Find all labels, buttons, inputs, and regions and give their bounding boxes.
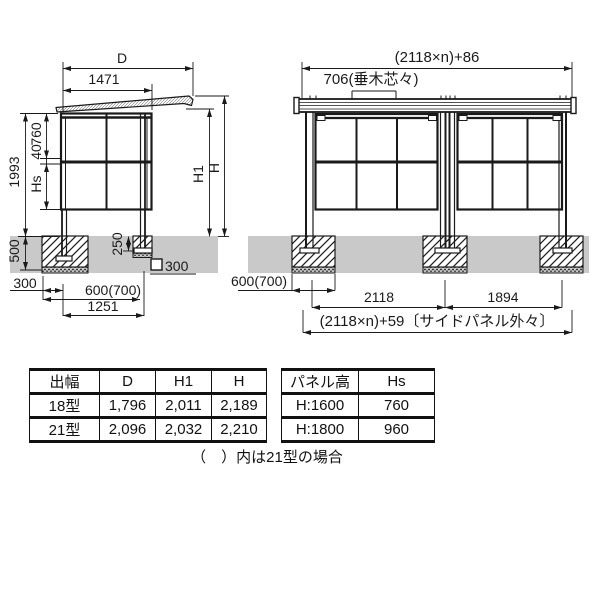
dim-label-600-700-left: 600(700): [85, 283, 141, 297]
table-cell: 760: [359, 394, 435, 418]
dim-label-250: 250: [110, 232, 124, 255]
front-footing: [133, 236, 152, 258]
catalog-dimension-drawing-page: { "left_view": { "dims": { "d": "D", "de…: [0, 0, 600, 600]
dim-label-1251: 1251: [87, 299, 118, 313]
dim-label-panel-outer: (2118×n)+59〔サイドパネル外々〕: [320, 314, 555, 329]
table-row: H:1800 960: [282, 418, 435, 442]
panel-height-table: パネル高 Hs H:1600 760 H:1800 960: [281, 368, 435, 443]
col-header: D: [100, 370, 156, 394]
table-cell: H:1600: [282, 394, 359, 418]
dim-bays: [312, 280, 562, 308]
table-header-row: パネル高 Hs: [282, 370, 435, 394]
panel-bay-1: [316, 114, 438, 210]
dim-label-1993: 1993: [7, 156, 21, 187]
col-header: 出幅: [30, 370, 100, 394]
col-header: H: [212, 370, 267, 394]
dim-label-total-width: (2118×n)+86: [395, 50, 480, 65]
post-middle: [435, 112, 460, 253]
front-elevation: [238, 62, 589, 333]
table-cell: 21型: [30, 418, 100, 442]
dim-label-d: D: [117, 51, 127, 65]
anchor-square-symbol: [151, 259, 162, 270]
dim-label-h1: H1: [191, 165, 205, 183]
size-spec-table: 出幅 D H1 H 18型 1,796 2,011 2,189 21型 2,09…: [29, 368, 267, 443]
col-header: パネル高: [282, 370, 359, 394]
roof-beam: [294, 96, 576, 114]
dim-label-1894: 1894: [487, 290, 518, 304]
dim-label-500: 500: [7, 239, 21, 262]
dim-label-h: H: [207, 163, 221, 173]
dim-label-1471: 1471: [88, 72, 119, 86]
dim-label-300: 300: [13, 276, 36, 290]
col-header: Hs: [359, 370, 435, 394]
dim-label-hs: Hs: [29, 175, 43, 192]
roof-slab: [56, 96, 193, 112]
footing-3: [540, 236, 583, 273]
table-cell: 960: [359, 418, 435, 442]
table-header-row: 出幅 D H1 H: [30, 370, 267, 394]
table-row: 21型 2,096 2,032 2,210: [30, 418, 267, 442]
table-cell: 2,189: [212, 394, 267, 418]
dim-label-anchor-300: 300: [165, 259, 188, 273]
table-row: H:1600 760: [282, 394, 435, 418]
dim-rafter-pitch: [352, 91, 396, 99]
table-cell: 2,032: [156, 418, 212, 442]
col-header: H1: [156, 370, 212, 394]
front-post: [134, 114, 152, 254]
table-cell: 2,210: [212, 418, 267, 442]
rear-footing: [42, 236, 88, 273]
dim-label-40: 40: [29, 144, 43, 160]
side-panel-grid: [61, 114, 152, 210]
dim-label-2118: 2118: [364, 290, 394, 304]
panel-bay-2: [458, 114, 563, 210]
dim-label-760: 760: [29, 122, 43, 145]
table-cell: 2,011: [156, 394, 212, 418]
table-cell: 1,796: [100, 394, 156, 418]
table-cell: 2,096: [100, 418, 156, 442]
table-cell: 18型: [30, 394, 100, 418]
table-row: 18型 1,796 2,011 2,189: [30, 394, 267, 418]
table-cell: H:1800: [282, 418, 359, 442]
dim-label-rafter-pitch: 706(垂木芯々): [323, 72, 418, 87]
footnote-21-type: （ ）内は21型の場合: [191, 446, 343, 467]
dim-label-600-700-right: 600(700): [231, 274, 287, 288]
